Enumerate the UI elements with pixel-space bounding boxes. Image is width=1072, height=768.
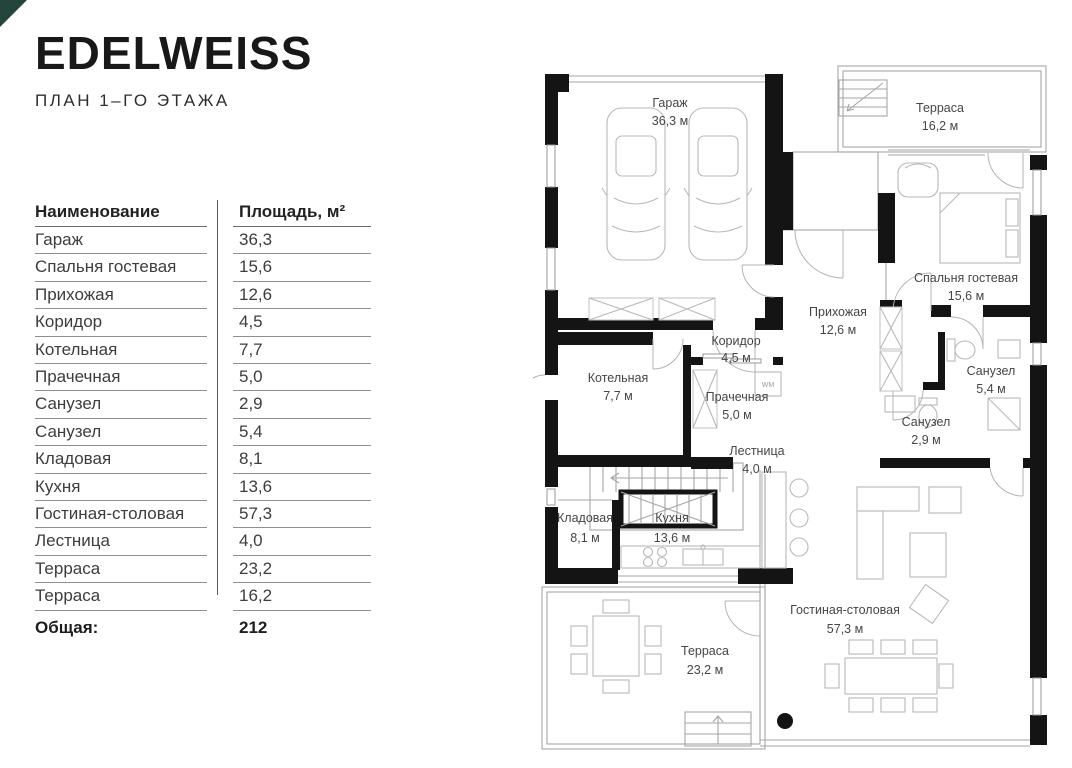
svg-text:7,7 м: 7,7 м [603,389,632,403]
room-label-corridor: Коридор [711,334,760,348]
table-column-divider [217,200,218,595]
table-row: Санузел2,9 [35,391,371,418]
table-row: Кухня13,6 [35,474,371,501]
table-row: Кладовая8,1 [35,446,371,473]
room-label-bath-large: Санузел [967,364,1016,378]
table-total-row: Общая: 212 [35,611,371,644]
col-header-area: Площадь, м² [233,197,371,227]
car-top-view [684,108,752,260]
sink-icon [683,545,723,565]
room-label-guest-bedroom: Спальня гостевая [914,271,1018,285]
svg-text:57,3 м: 57,3 м [827,622,863,636]
svg-text:4,0 м: 4,0 м [742,462,771,476]
terrace-furniture [571,600,751,746]
table-row: Гостиная-столовая57,3 [35,501,371,528]
plan-subtitle: ПЛАН 1–ГО ЭТАЖА [35,91,312,111]
entrance-steps [839,80,887,116]
column [777,713,793,729]
room-label-terrace-bottom: Терраса [681,644,729,658]
svg-text:36,3 м: 36,3 м [652,114,688,128]
living-furniture [762,472,961,729]
terrace-bottom-outline [542,587,765,749]
table-row: Спальня гостевая15,6 [35,254,371,281]
total-label: Общая: [35,611,207,644]
room-label-stairs: Лестница [729,444,784,458]
room-label-storage: Кладовая [557,511,613,525]
svg-text:4,5 м: 4,5 м [721,351,750,365]
room-label-living: Гостиная-столовая [790,603,900,617]
bedroom-furniture [898,163,1020,263]
svg-text:15,6 м: 15,6 м [948,289,984,303]
page: EDELWEISS ПЛАН 1–ГО ЭТАЖА Наименование П… [0,0,1072,768]
brand-block: EDELWEISS ПЛАН 1–ГО ЭТАЖА [35,30,312,111]
table-row: Коридор4,5 [35,309,371,336]
table-row: Терраса23,2 [35,556,371,583]
svg-text:5,0 м: 5,0 м [722,408,751,422]
room-label-garage: Гараж [652,96,688,110]
wm-label: WM [762,382,775,389]
stove-icon [644,548,667,567]
floor-plan: WM [533,60,1072,762]
col-header-name: Наименование [35,197,207,227]
svg-text:23,2 м: 23,2 м [687,663,723,677]
svg-text:5,4 м: 5,4 м [976,382,1005,396]
corner-accent-triangle [0,0,27,27]
table-row: Терраса16,2 [35,583,371,610]
svg-text:13,6 м: 13,6 м [654,531,690,545]
room-label-hallway: Прихожая [809,305,867,319]
car-top-view [602,108,670,260]
table-row: Лестница4,0 [35,528,371,555]
table-row: Гараж36,3 [35,227,371,254]
logo: EDELWEISS [35,30,312,76]
table-row: Санузел5,4 [35,419,371,446]
svg-text:2,9 м: 2,9 м [911,433,940,447]
total-value: 212 [233,611,371,644]
garage-closets [589,298,715,320]
table-header-row: Наименование Площадь, м² [35,197,371,227]
svg-text:16,2 м: 16,2 м [922,119,958,133]
table-row: Прачечная5,0 [35,364,371,391]
area-table: Наименование Площадь, м² Гараж36,3 Спаль… [35,197,371,644]
svg-text:8,1 м: 8,1 м [570,531,599,545]
room-label-terrace-top: Терраса [916,101,964,115]
porch-recess [793,152,878,230]
svg-text:12,6 м: 12,6 м [820,323,856,337]
room-label-kitchen: Кухня [655,511,688,525]
kitchen-counter [621,545,760,568]
table-row: Котельная7,7 [35,337,371,364]
table-row: Прихожая12,6 [35,282,371,309]
room-label-bath-small: Санузел [902,415,951,429]
room-label-boiler: Котельная [588,371,649,385]
terrace-steps [685,712,751,746]
room-label-laundry: Прачечная [706,390,769,404]
